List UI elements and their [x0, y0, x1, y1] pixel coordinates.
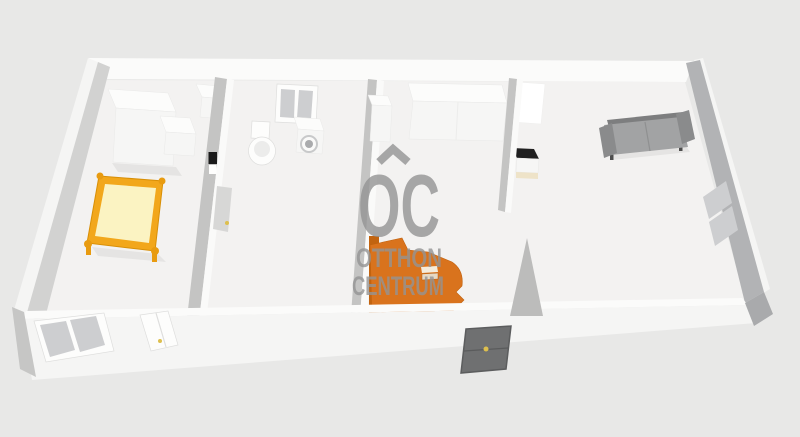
toilet-seat — [254, 141, 270, 157]
watermark: OC OTTHON CENTRUM — [352, 149, 444, 301]
nightstand-base — [516, 172, 538, 179]
wall-switch-plate — [209, 165, 217, 174]
nightstand-front — [516, 158, 539, 173]
cabinet-front — [164, 132, 196, 156]
bathroom-window-pane — [280, 89, 295, 118]
child-bed-mattress — [95, 184, 156, 243]
bed-post — [97, 173, 104, 180]
terrace-door-handle — [158, 339, 162, 343]
toilet-tank — [251, 121, 270, 139]
kitchen-counter-top — [408, 83, 507, 103]
watermark-line1: OTTHON — [356, 243, 442, 273]
tall-cabinet-front — [370, 105, 392, 142]
bed-leg — [86, 246, 91, 255]
bed-post — [159, 178, 166, 185]
interior-door-handle — [225, 221, 229, 225]
bathroom-window-pane — [297, 90, 313, 119]
watermark-logo: OC — [358, 156, 440, 255]
top-wall — [89, 58, 694, 82]
floorplan-image: OC OTTHON CENTRUM — [0, 0, 800, 437]
washing-machine-door-glass — [305, 140, 313, 148]
tall-cabinet-top — [368, 95, 392, 106]
wall-switch — [209, 152, 218, 164]
entrance-door-handle — [484, 347, 489, 352]
watermark-line2: CENTRUM — [352, 271, 444, 301]
bed-leg — [152, 253, 157, 262]
